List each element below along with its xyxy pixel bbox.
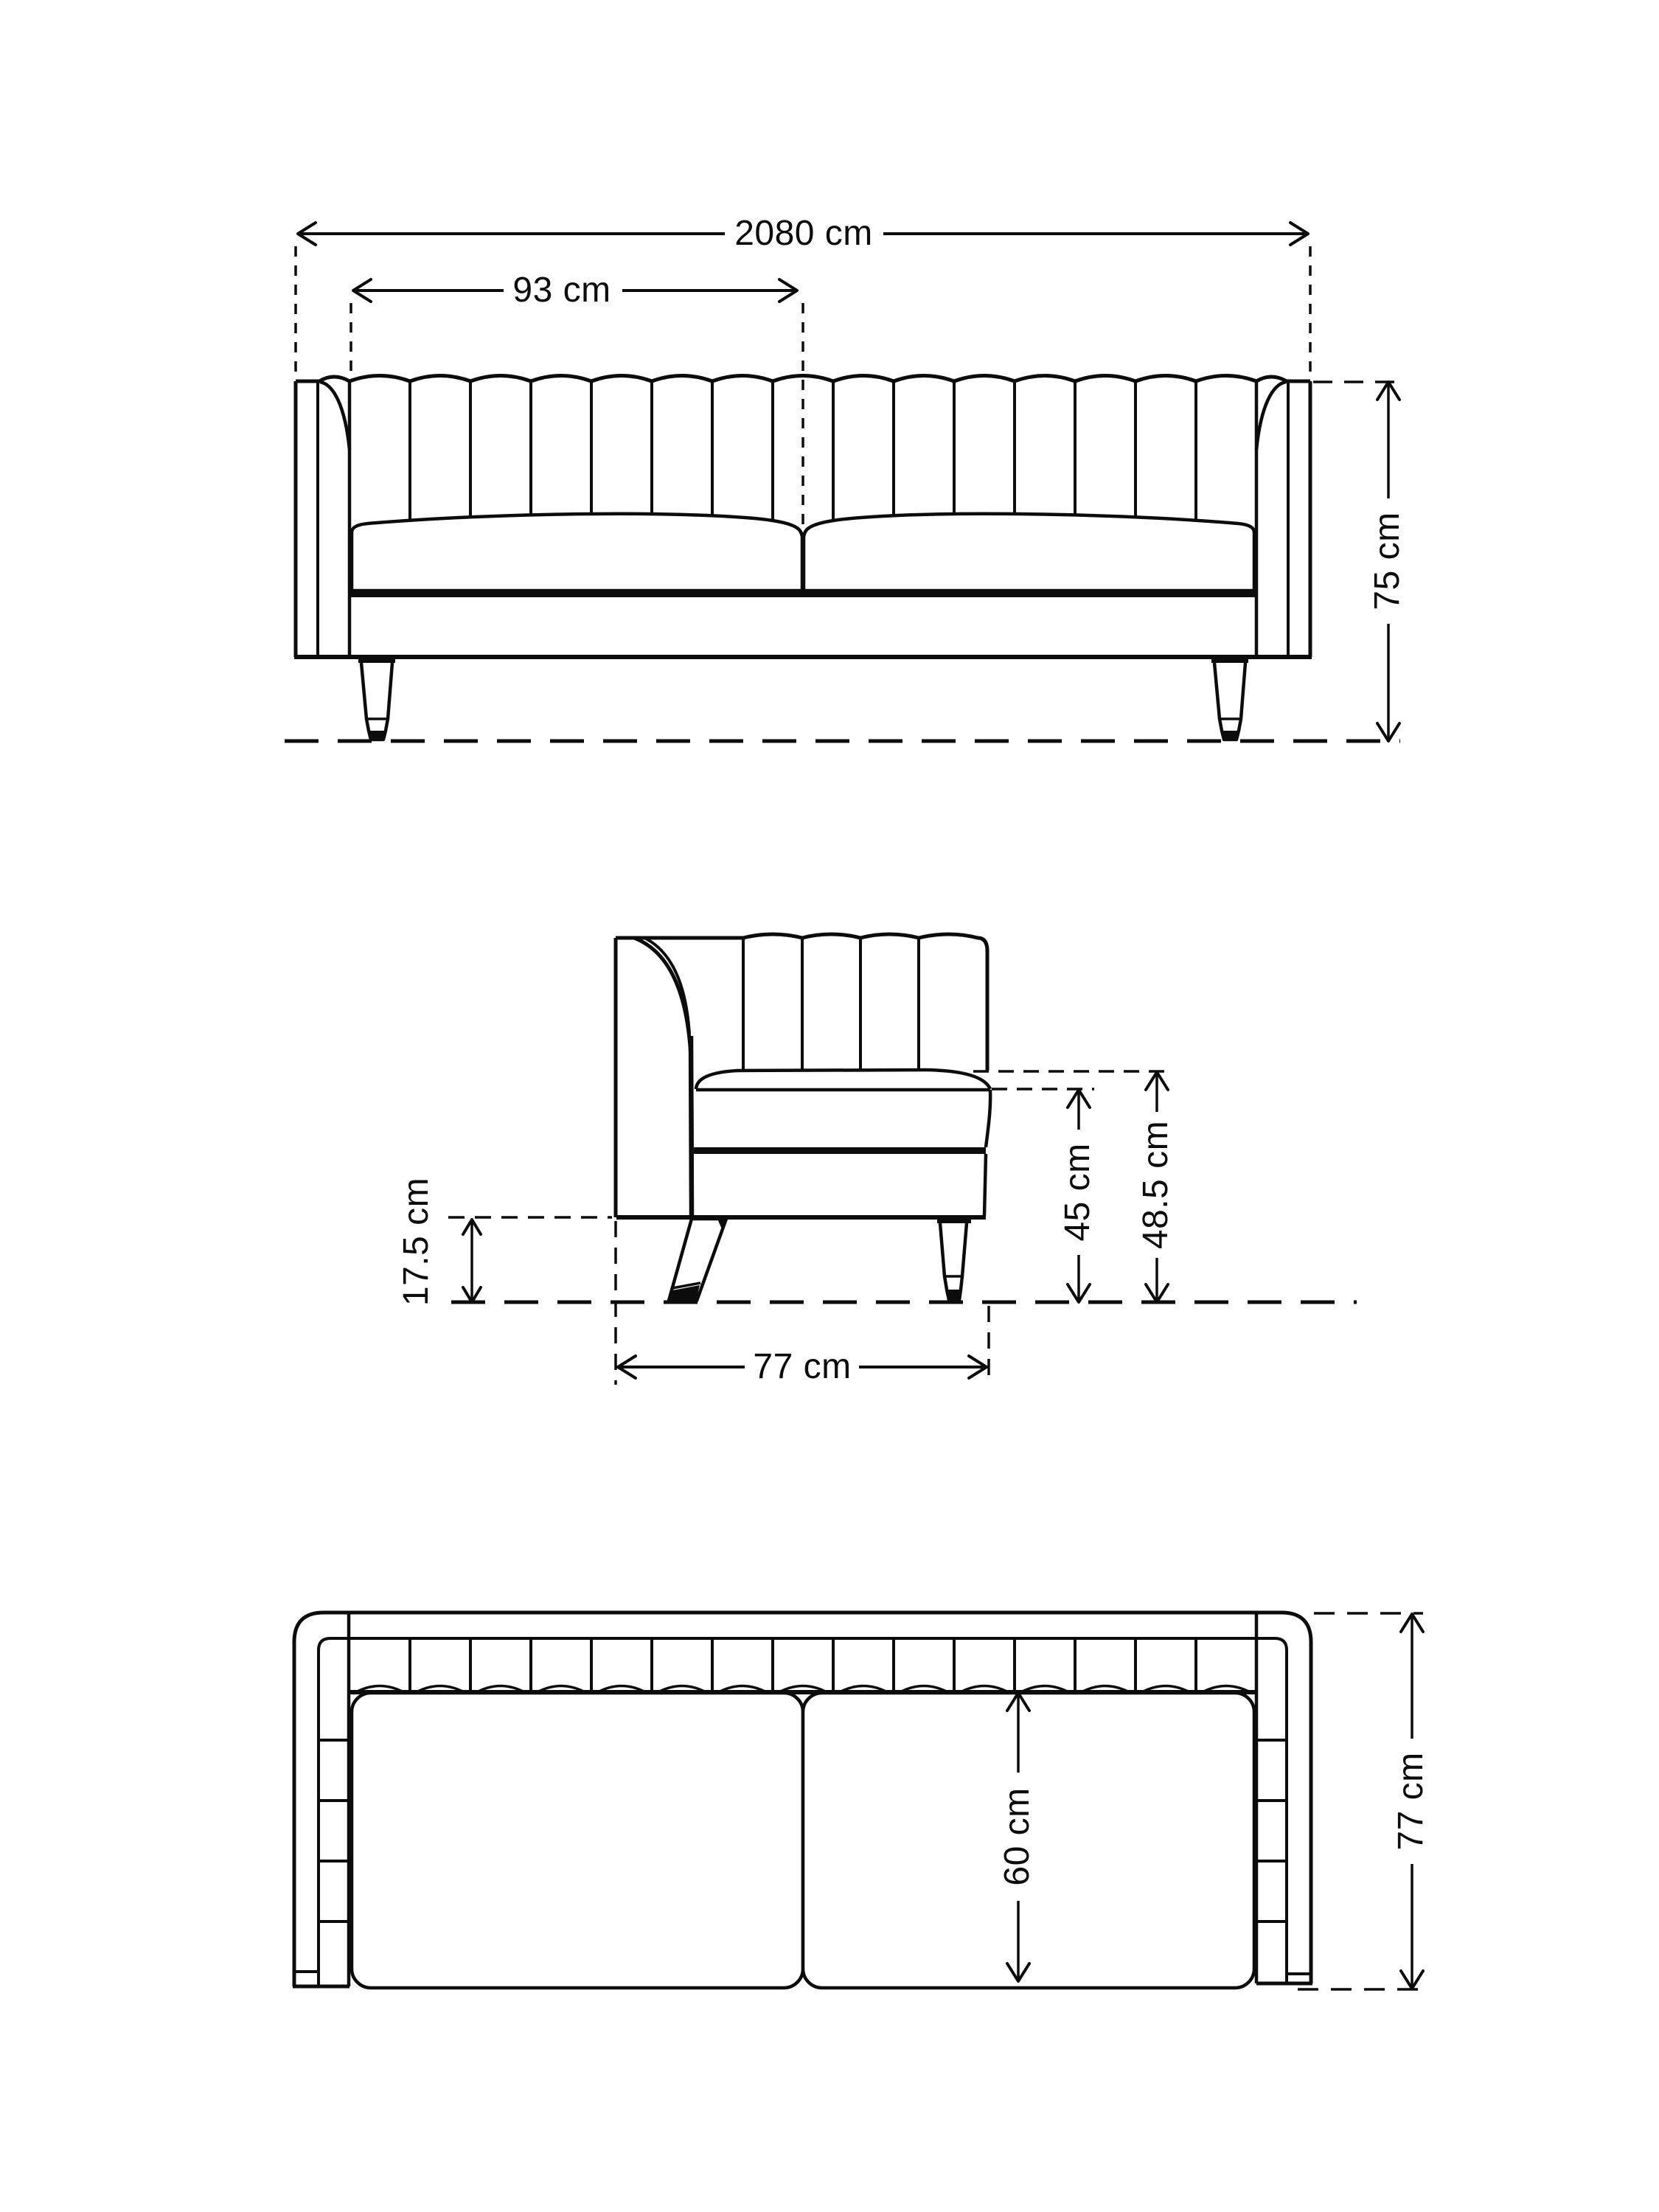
svg-text:75 cm: 75 cm <box>1368 512 1407 610</box>
svg-text:77 cm: 77 cm <box>753 1347 851 1386</box>
svg-text:2080 cm: 2080 cm <box>734 214 873 253</box>
svg-text:17.5 cm: 17.5 cm <box>397 1178 436 1306</box>
svg-text:93 cm: 93 cm <box>512 271 611 310</box>
svg-text:48.5 cm: 48.5 cm <box>1136 1121 1175 1249</box>
svg-text:60 cm: 60 cm <box>998 1787 1037 1885</box>
svg-text:45 cm: 45 cm <box>1058 1143 1097 1241</box>
svg-text:77 cm: 77 cm <box>1391 1752 1430 1850</box>
